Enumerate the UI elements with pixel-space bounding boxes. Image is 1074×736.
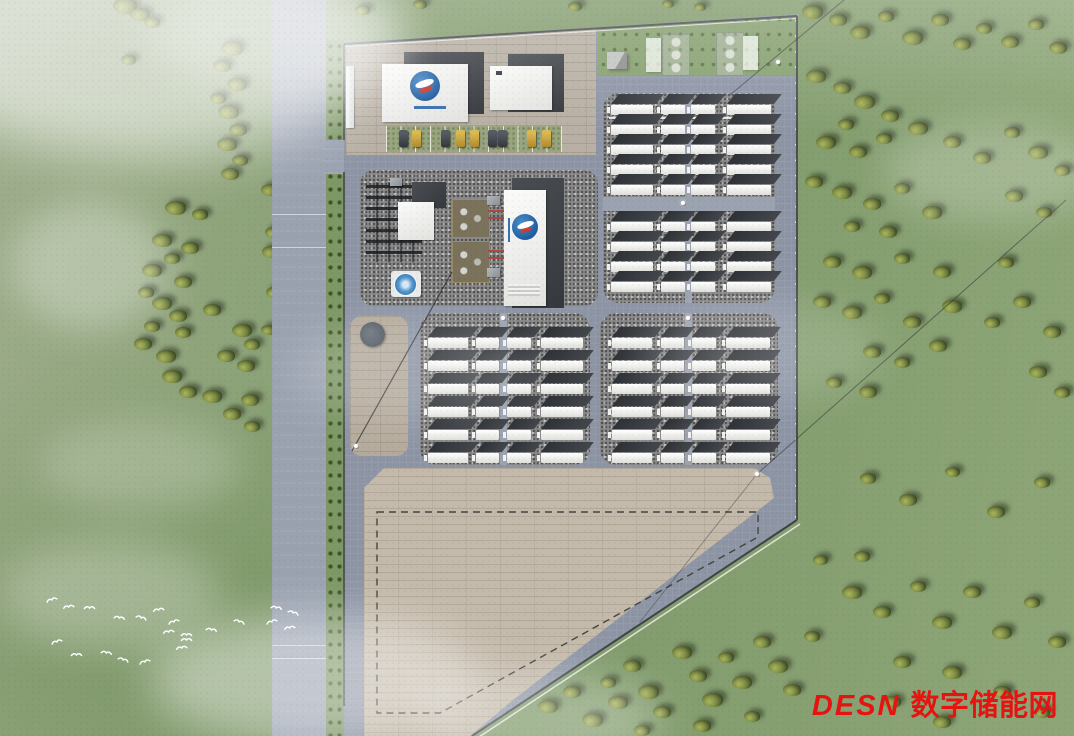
bird — [112, 607, 128, 627]
aerial-render: DESN数字储能网 — [0, 0, 1074, 736]
bird — [43, 588, 61, 609]
bird — [151, 599, 167, 619]
bird — [48, 630, 66, 651]
bird — [70, 645, 83, 663]
watermark-brand: DESN — [812, 690, 901, 722]
bird — [231, 610, 249, 631]
bird — [99, 642, 115, 662]
bird — [180, 630, 193, 648]
bird — [61, 596, 77, 616]
bird — [115, 648, 133, 669]
bird — [161, 621, 177, 641]
bird — [83, 598, 96, 616]
bird — [285, 601, 303, 622]
bird — [133, 606, 151, 627]
bird — [269, 597, 285, 617]
bird-flock — [0, 0, 1074, 736]
bird — [204, 619, 220, 639]
watermark: DESN数字储能网 — [812, 682, 1058, 724]
watermark-site-name: 数字储能网 — [910, 690, 1058, 722]
bird — [136, 650, 154, 671]
